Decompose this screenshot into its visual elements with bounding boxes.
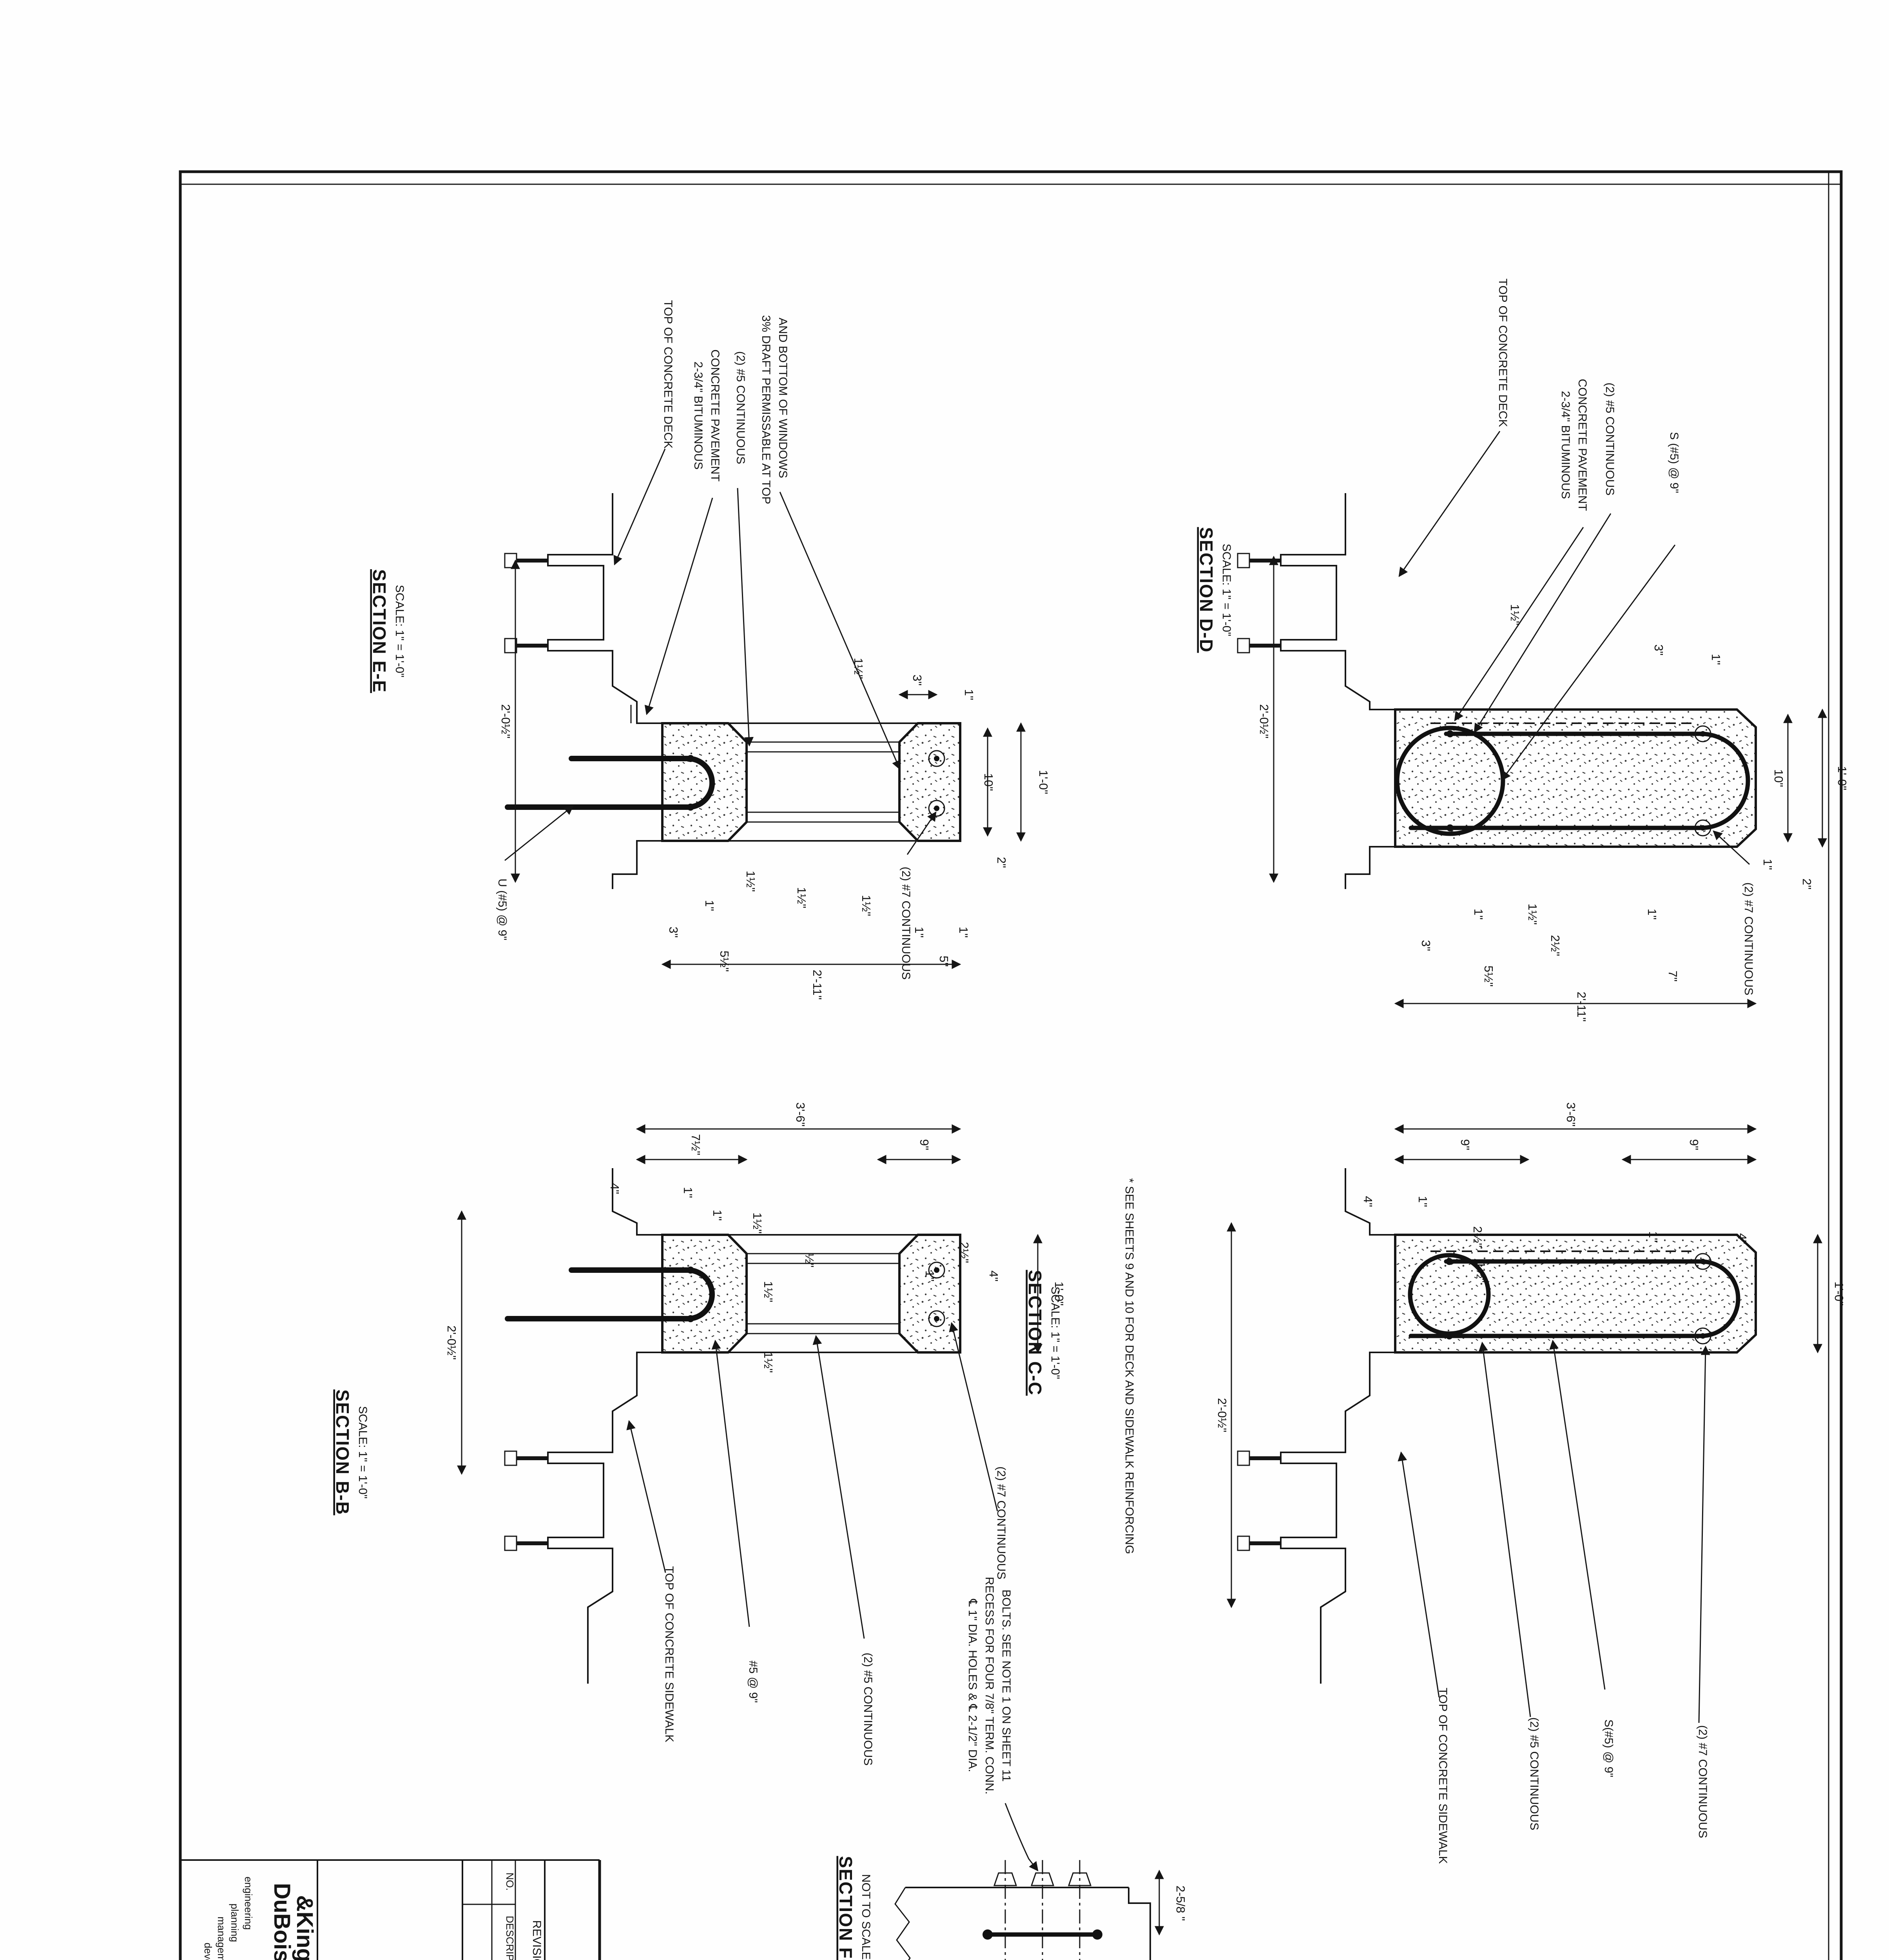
dim: 1½" <box>761 1352 775 1373</box>
drawing-sheet: DuBois &King Inc. engineering planning m… <box>0 0 1889 1960</box>
dim: 3" <box>910 675 924 686</box>
label-bituminous-2: CONCRETE PAVEMENT <box>709 349 722 481</box>
section-bb-scale: SCALE: 1" = 1'-0" <box>356 1406 369 1499</box>
dim: 1" <box>711 1210 724 1221</box>
dim: 1" <box>962 689 976 700</box>
dim: 9" <box>1687 1139 1701 1150</box>
section-bb: SECTION B-B SCALE: 1" = 1'-0" 3'-6" 7½" … <box>332 1102 1066 1766</box>
dim: 2" <box>1800 878 1814 889</box>
revisions-title: REVISIONS <box>530 1920 543 1960</box>
section-ee: SECTION E-E SCALE: 1" = 1'-0" 2'-0½" 3" … <box>369 300 1050 1000</box>
terminal-bolt <box>1069 1860 1091 1960</box>
dim: 5½" <box>718 951 731 972</box>
deck-reinforcing-note: * SEE SHEETS 9 AND 10 FOR DECK AND SIDEW… <box>1123 1178 1136 1554</box>
dim: 1½" <box>795 887 809 908</box>
dim: 1" <box>703 900 716 911</box>
dim: 1½" <box>744 871 758 892</box>
label-2no5-continuous: (2) #5 CONTINUOUS <box>1528 1717 1541 1830</box>
dim: 1½" <box>1474 1261 1488 1283</box>
section-ff: SECTION F-F NOT TO SCALE ℄ 1" DIA. HOLES… <box>836 1577 1187 1960</box>
revisions-col-no: NO. <box>504 1873 516 1891</box>
bolt <box>505 1451 548 1465</box>
bolt <box>505 554 548 568</box>
section-dd-scale: SCALE: 1" = 1'-0" <box>1220 544 1233 636</box>
dim: 1" <box>1761 859 1775 870</box>
dim: 5½" <box>1482 965 1496 987</box>
section-ee-scale: SCALE: 1" = 1'-0" <box>393 585 406 677</box>
label-top-of-concrete-deck: TOP OF CONCRETE DECK <box>1496 279 1509 427</box>
dim: 2'-0½" <box>1215 1398 1229 1432</box>
dim: 1" <box>957 927 970 938</box>
dim: 2" <box>995 857 1008 868</box>
dim: 2'-11" <box>810 970 824 1000</box>
label-u-bar: U (#5) @ 9" <box>496 878 509 940</box>
dim: 9" <box>1458 1139 1472 1150</box>
dim: 4" <box>987 1270 1001 1281</box>
dim: 3" <box>667 927 680 938</box>
label-2no7-continuous: (2) #7 CONTINUOUS <box>1696 1725 1709 1838</box>
dim: 4" <box>1735 1233 1749 1244</box>
dim: 7" <box>1666 971 1680 982</box>
dim: 1" <box>923 1270 937 1281</box>
label-2no5-continuous: (2) #5 CONTINUOUS <box>1603 383 1616 495</box>
dim: 7½" <box>689 1134 703 1155</box>
label-bituminous-1: 2-3/4" BITUMINOUS <box>1559 391 1572 499</box>
section-cc-scale: SCALE: 1" = 1'-0" <box>1049 1287 1062 1379</box>
label-s-bar: S(#5) @ 9" <box>1602 1719 1615 1777</box>
label-draft-1: 3% DRAFT PERMISSABLE AT TOP <box>760 315 772 504</box>
dim: 1" <box>912 927 926 938</box>
section-cc-title: SECTION C-C <box>1025 1270 1045 1396</box>
dim: 1" <box>1645 909 1659 920</box>
dim: 2½" <box>1471 1226 1485 1247</box>
dim: 3'-6" <box>1564 1102 1578 1127</box>
label-2no5-continuous: (2) #5 CONTINUOUS <box>734 351 747 464</box>
dim: 1'-0" <box>1832 1281 1846 1306</box>
logo-word-planning: planning <box>229 1904 241 1942</box>
revisions-block: NO. DESCRIPTION BY & DATE REVISIONS <box>462 1860 545 1960</box>
dim: 1" <box>681 1187 695 1198</box>
dim: 1'-0" <box>1835 766 1849 790</box>
dim: 1½" <box>751 1212 764 1234</box>
section-dd-title: SECTION D-D <box>1196 527 1216 653</box>
dubois-king-logo: DuBois &King Inc. engineering planning m… <box>202 1877 317 1960</box>
dim: 1½" <box>852 658 865 679</box>
dim: 2½" <box>957 1242 971 1263</box>
section-ff-title: SECTION F-F <box>836 1856 856 1960</box>
dim: 1½" <box>859 895 873 916</box>
dim: 2'-11" <box>1575 992 1588 1022</box>
dim: 1" <box>1416 1196 1430 1207</box>
dim: 1" <box>1646 1231 1660 1242</box>
bolt <box>505 1536 548 1550</box>
dim: 1'-0" <box>1037 770 1050 794</box>
logo-name-1: DuBois <box>269 1883 295 1960</box>
label-2no5-continuous: (2) #5 CONTINUOUS <box>861 1653 874 1766</box>
label-no5-at-9: #5 @ 9" <box>747 1661 760 1703</box>
logo-word-management: management <box>216 1916 227 1960</box>
label-2no7-continuous: (2) #7 CONTINUOUS <box>899 867 912 980</box>
label-top-of-concrete-deck: TOP OF CONCRETE DECK <box>662 300 674 449</box>
section-dd: SECTION D-D SCALE: 1" = 1'-0" 2'-0½" 1½"… <box>1196 279 1849 1022</box>
terminal-bolt <box>1032 1860 1053 1960</box>
dim: 9" <box>917 1139 931 1150</box>
dim: 10" <box>1772 769 1786 787</box>
dim: 3'-6" <box>794 1102 807 1127</box>
dim: 4" <box>608 1183 622 1194</box>
logo-word-engineering: engineering <box>243 1877 254 1930</box>
label-2no7-continuous: (2) #7 CONTINUOUS <box>995 1466 1008 1579</box>
dim: 2-5/8 " <box>1174 1886 1187 1921</box>
term-conn-note-3: BOLTS. SEE NOTE 1 ON SHEET 11 <box>1000 1590 1013 1782</box>
sheet-canvas: DuBois &King Inc. engineering planning m… <box>0 0 1889 1960</box>
section-ee-title: SECTION E-E <box>369 569 390 693</box>
dim: 1" <box>1709 654 1723 665</box>
label-top-of-sidewalk: TOP OF CONCRETE SIDEWALK <box>663 1566 676 1742</box>
term-conn-note-2: RECESS FOR FOUR 7/8" TERM. CONN. <box>983 1577 996 1794</box>
dim: 4" <box>1361 1196 1375 1207</box>
label-s-bar: S (#5) @ 9" <box>1668 432 1681 493</box>
label-bituminous-1: 2-3/4" BITUMINOUS <box>692 361 705 470</box>
bolt <box>1238 1536 1281 1550</box>
section-cc: SECTION C-C SCALE: 1" = 1'-0" * SEE SHEE… <box>1025 1102 1846 1864</box>
bolt <box>1238 1451 1281 1465</box>
dim: 2'-0½" <box>1257 704 1271 739</box>
dim: 2½" <box>1548 935 1562 956</box>
label-bituminous-2: CONCRETE PAVEMENT <box>1576 379 1589 511</box>
dim: 1½" <box>1526 904 1539 925</box>
label-draft-2: AND BOTTOM OF WINDOWS <box>776 318 789 478</box>
dim: 1" <box>1472 909 1485 920</box>
logo-name-2: &King <box>292 1895 317 1960</box>
dim: 2'-0½" <box>499 704 513 739</box>
dim: 1½" <box>761 1281 775 1302</box>
bolt <box>505 639 548 653</box>
label-2no7-continuous: (2) #7 CONTINUOUS <box>1742 882 1755 995</box>
dim: 5" <box>937 956 951 967</box>
dim: ½" <box>803 1253 816 1268</box>
logo-word-development: development <box>202 1943 214 1960</box>
revisions-col-description: DESCRIPTION <box>504 1916 516 1960</box>
terminal-bolt <box>994 1860 1016 1960</box>
dim: 3" <box>1419 940 1433 951</box>
label-top-of-sidewalk: TOP OF CONCRETE SIDEWALK <box>1436 1688 1449 1864</box>
section-ff-scale: NOT TO SCALE <box>859 1874 872 1960</box>
dim: 10" <box>982 773 995 791</box>
section-bb-title: SECTION B-B <box>332 1390 353 1515</box>
dim: 3" <box>1652 644 1666 655</box>
dim: 2'-0½" <box>445 1325 459 1360</box>
term-conn-note-1: ℄ 1" DIA. HOLES & ℄ 2-1/2" DIA. <box>966 1599 979 1772</box>
